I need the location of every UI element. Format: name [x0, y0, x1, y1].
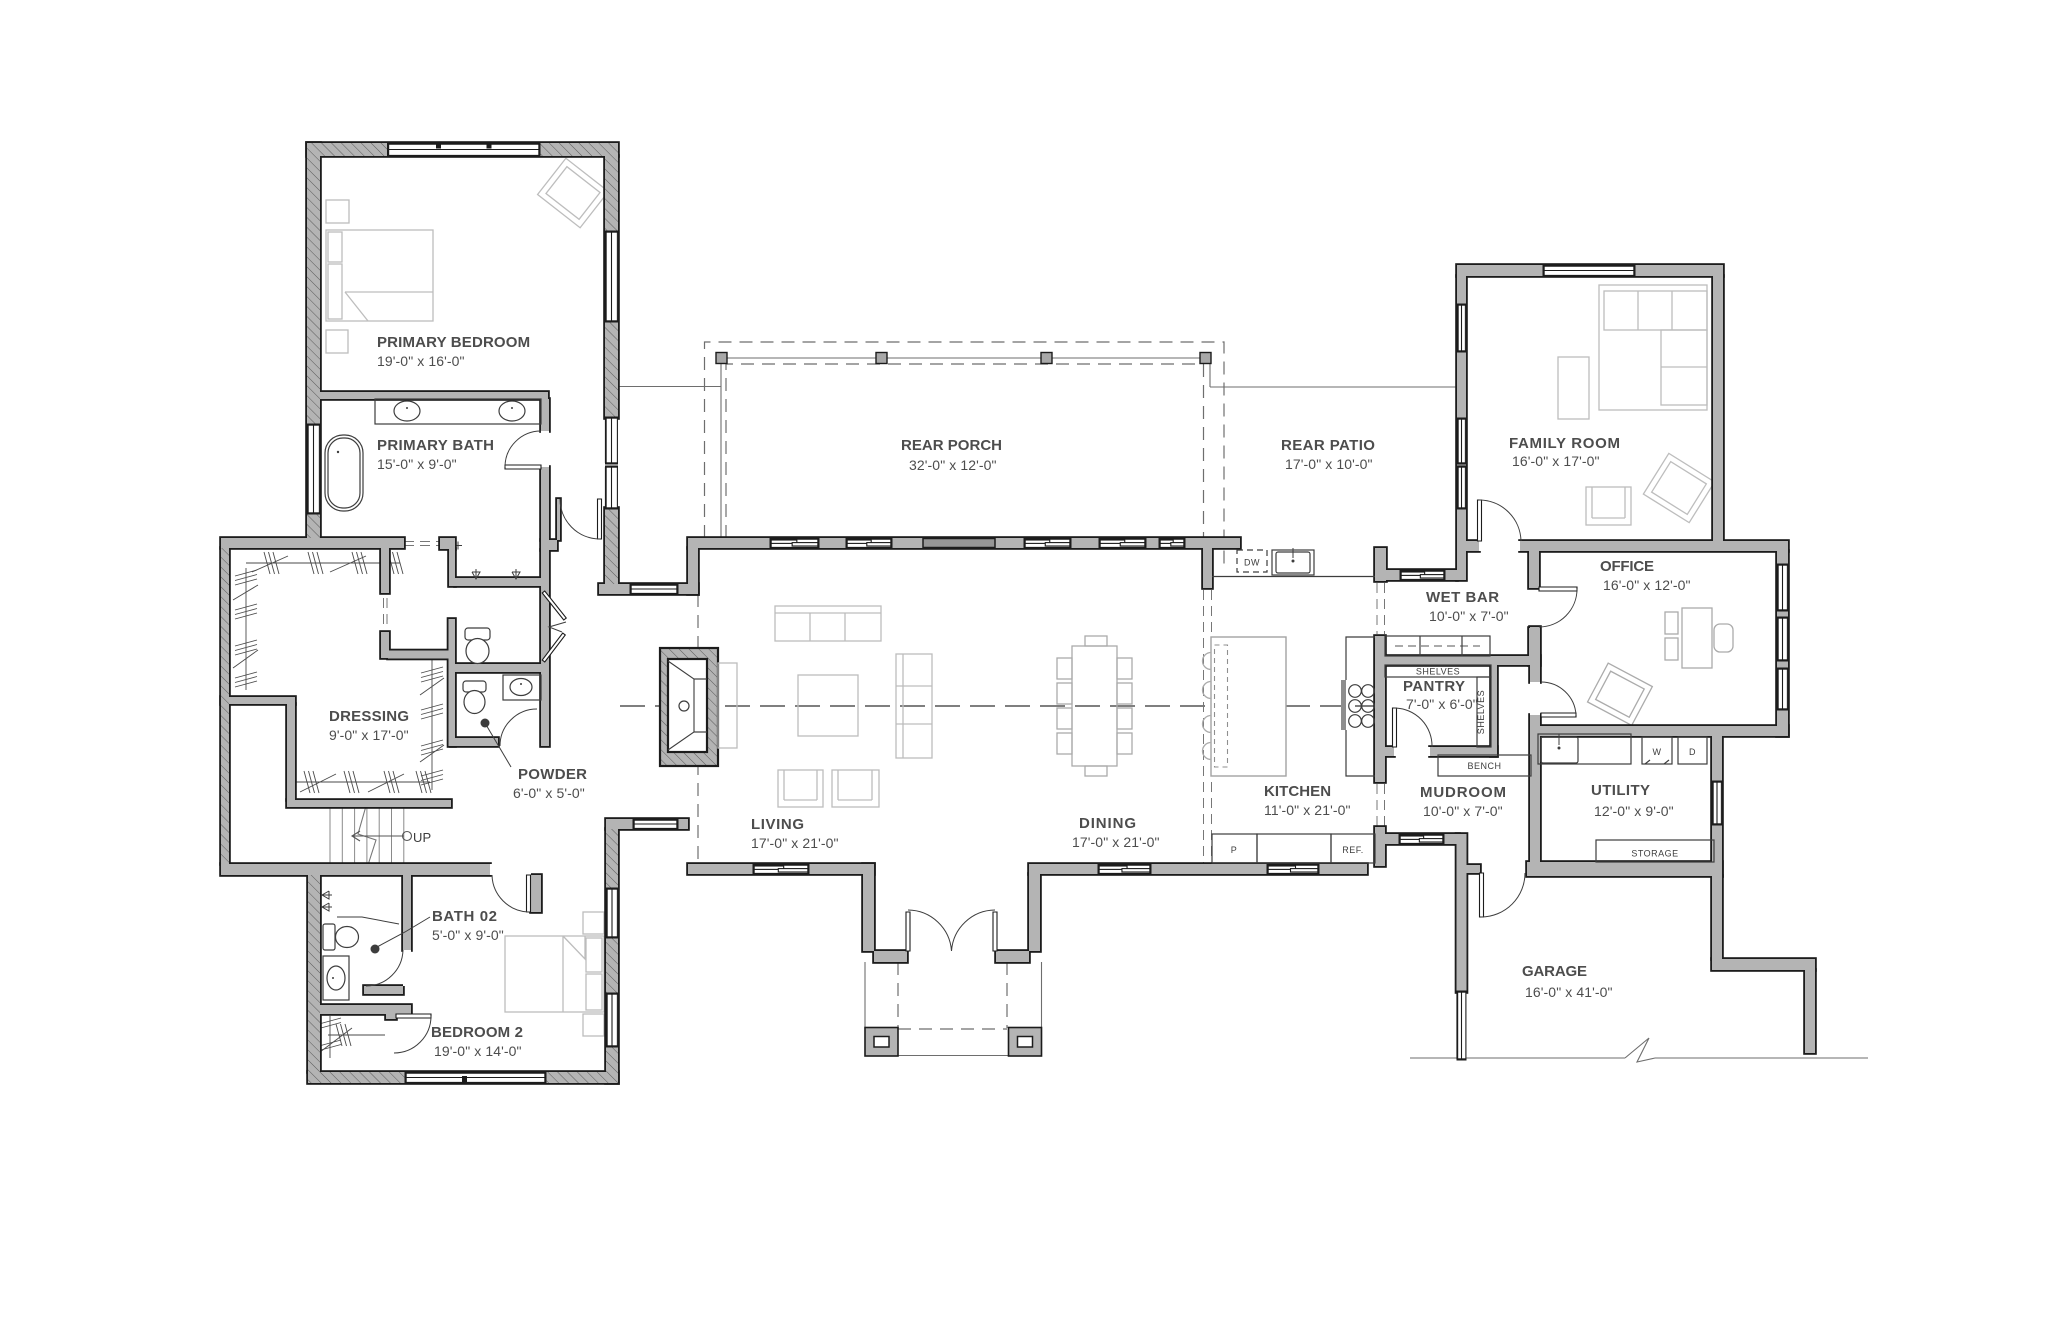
svg-text:PRIMARY BEDROOM: PRIMARY BEDROOM — [377, 334, 530, 351]
svg-text:W: W — [1653, 747, 1662, 757]
svg-text:16'-0" x 17'-0": 16'-0" x 17'-0" — [1512, 453, 1600, 469]
svg-text:UTILITY: UTILITY — [1591, 782, 1650, 799]
svg-text:REAR PATIO: REAR PATIO — [1281, 437, 1375, 454]
svg-text:GARAGE: GARAGE — [1522, 963, 1587, 980]
svg-text:19'-0" x 14'-0": 19'-0" x 14'-0" — [434, 1043, 522, 1059]
svg-text:DW: DW — [1244, 558, 1260, 568]
svg-text:16'-0" x 41'-0": 16'-0" x 41'-0" — [1525, 984, 1613, 1000]
svg-text:16'-0" x 12'-0": 16'-0" x 12'-0" — [1603, 577, 1691, 593]
svg-text:6'-0" x 5'-0": 6'-0" x 5'-0" — [513, 785, 585, 801]
svg-text:STORAGE: STORAGE — [1631, 849, 1678, 859]
svg-text:7'-0" x 6'-0": 7'-0" x 6'-0" — [1406, 696, 1478, 712]
svg-text:P: P — [1231, 845, 1238, 855]
svg-text:BEDROOM 2: BEDROOM 2 — [431, 1024, 523, 1041]
svg-text:UP: UP — [413, 830, 431, 845]
svg-text:BATH 02: BATH 02 — [432, 908, 498, 925]
svg-text:D: D — [1689, 747, 1696, 757]
svg-text:WET BAR: WET BAR — [1426, 589, 1500, 606]
svg-text:10'-0" x 7'-0": 10'-0" x 7'-0" — [1429, 608, 1509, 624]
svg-text:DINING: DINING — [1079, 815, 1137, 832]
svg-text:KITCHEN: KITCHEN — [1264, 783, 1331, 800]
svg-text:PRIMARY BATH: PRIMARY BATH — [377, 437, 494, 454]
svg-text:POWDER: POWDER — [518, 766, 587, 783]
svg-text:32'-0" x 12'-0": 32'-0" x 12'-0" — [909, 457, 997, 473]
svg-text:PANTRY: PANTRY — [1403, 678, 1465, 695]
svg-text:SHELVES: SHELVES — [1416, 667, 1460, 677]
svg-text:17'-0" x 10'-0": 17'-0" x 10'-0" — [1285, 456, 1373, 472]
svg-text:17'-0" x 21'-0": 17'-0" x 21'-0" — [751, 835, 839, 851]
svg-text:11'-0" x 21'-0": 11'-0" x 21'-0" — [1264, 802, 1351, 818]
svg-text:MUDROOM: MUDROOM — [1420, 784, 1507, 801]
svg-text:REAR PORCH: REAR PORCH — [901, 437, 1002, 454]
svg-text:15'-0" x 9'-0": 15'-0" x 9'-0" — [377, 456, 457, 472]
svg-text:LIVING: LIVING — [751, 816, 805, 833]
svg-text:10'-0" x 7'-0": 10'-0" x 7'-0" — [1423, 803, 1503, 819]
svg-text:19'-0" x 16'-0": 19'-0" x 16'-0" — [377, 353, 465, 369]
svg-text:FAMILY ROOM: FAMILY ROOM — [1509, 435, 1621, 452]
svg-text:12'-0" x 9'-0": 12'-0" x 9'-0" — [1594, 803, 1674, 819]
svg-text:5'-0" x 9'-0": 5'-0" x 9'-0" — [432, 927, 504, 943]
svg-text:REF.: REF. — [1342, 845, 1364, 855]
svg-text:OFFICE: OFFICE — [1600, 558, 1654, 575]
svg-text:SHELVES: SHELVES — [1476, 690, 1486, 734]
svg-text:BENCH: BENCH — [1467, 761, 1501, 771]
svg-text:9'-0" x 17'-0": 9'-0" x 17'-0" — [329, 727, 409, 743]
svg-text:DRESSING: DRESSING — [329, 708, 409, 725]
svg-text:17'-0" x 21'-0": 17'-0" x 21'-0" — [1072, 834, 1160, 850]
